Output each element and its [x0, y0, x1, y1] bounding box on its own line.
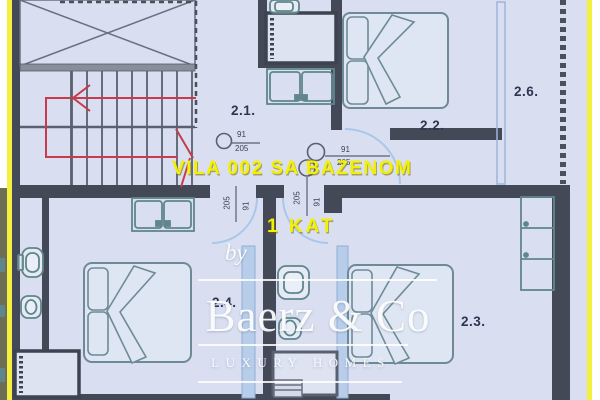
- watermark-brand: Baerz & Co: [198, 290, 438, 342]
- project-title: VILA 002 SA BAZENOM: [172, 158, 412, 180]
- floor-plan-page: 2.1. 2.2. 2.6. 2.3. 2.4. 91 205 91 205 2…: [0, 0, 600, 400]
- watermark-rule-top: [198, 279, 437, 281]
- room-label-bedroom-top: 2.2.: [420, 118, 445, 133]
- door1-width: 91: [237, 130, 246, 139]
- watermark-rule-middle: [198, 344, 408, 346]
- door3-width: 91: [313, 198, 322, 207]
- watermark-tagline: LUXURY HOMES: [198, 355, 404, 371]
- door1-height: 205: [235, 144, 248, 153]
- door4-height: 205: [223, 196, 232, 209]
- watermark-rule-bottom: [198, 381, 402, 383]
- outside-strip: [0, 188, 7, 400]
- bed-bedroom-top: [343, 13, 448, 108]
- room-label-terrace: 2.6.: [514, 84, 539, 99]
- floor-label: 1 KAT: [267, 216, 335, 238]
- room-label-hall: 2.1.: [231, 103, 256, 118]
- watermark-by: by: [225, 240, 247, 266]
- door4-width: 91: [242, 202, 251, 211]
- door2-width: 91: [341, 145, 350, 154]
- door3-height: 205: [293, 191, 302, 204]
- room-label-bedroom-right: 2.3.: [461, 314, 486, 329]
- bed-bedroom-left: [84, 263, 191, 363]
